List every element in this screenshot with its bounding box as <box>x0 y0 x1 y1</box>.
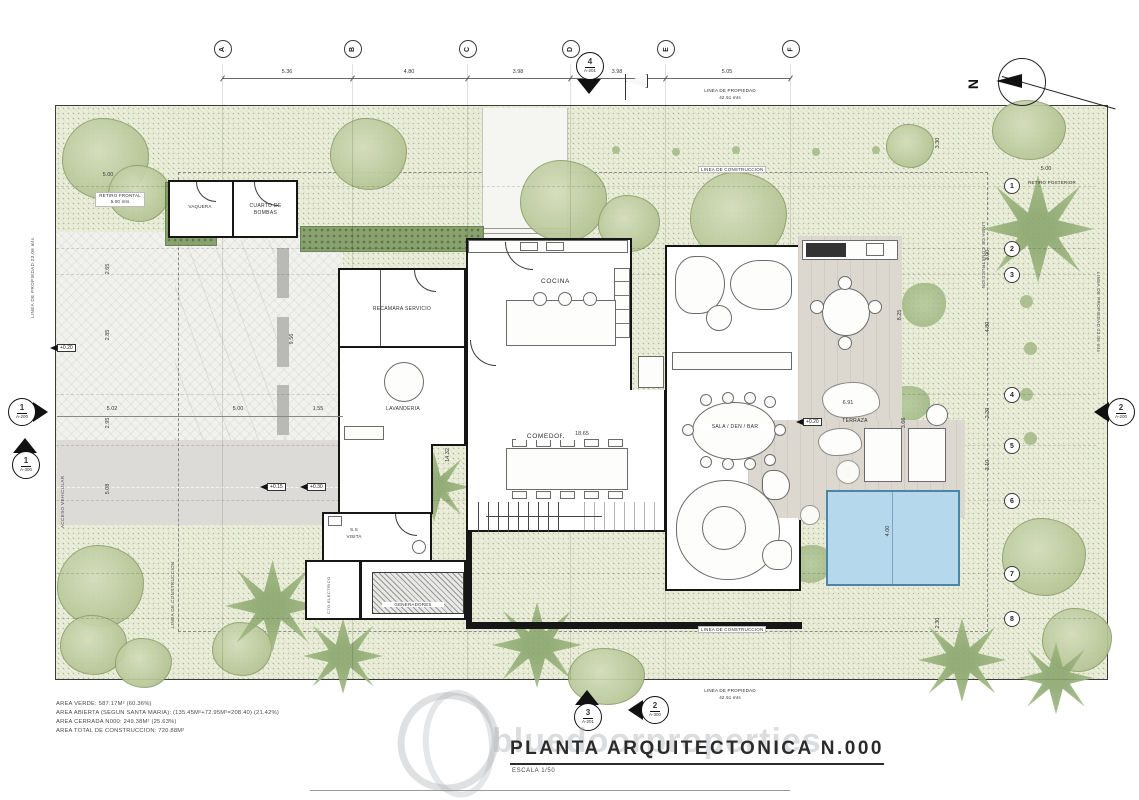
shrub-dot <box>732 146 740 154</box>
shrub-dot <box>812 148 820 156</box>
side-table <box>926 404 948 426</box>
grid-label: 8 <box>1010 616 1014 623</box>
drawing-scale: ESCALA 1/50 <box>512 768 555 774</box>
dim-mid-3: 1.55 <box>300 406 336 412</box>
label-recamara-servicio: RECAMARA SERVICIO <box>352 306 452 312</box>
dim-rchain-3: 2.20 <box>985 401 991 425</box>
elevation-value: +0.30 <box>307 483 326 491</box>
dim-lounger: 3.66 <box>901 411 907 435</box>
elevator-shaft <box>638 356 664 388</box>
chair <box>682 424 694 436</box>
dim-rock: 6.91 <box>830 400 866 406</box>
chair <box>536 491 551 499</box>
grid-label: F <box>788 47 795 51</box>
elevation-value: +0.20 <box>57 344 76 352</box>
kitchen-cooktop <box>546 242 564 251</box>
label-ss: S.S <box>342 527 366 532</box>
label-linea-construccion-left: LINEA DE CONSTRUCCION <box>170 548 175 628</box>
label-visita: VISITA <box>338 534 370 539</box>
text: LINEA DE PROPIEDAD <box>30 263 35 318</box>
shrub-dot <box>612 146 620 154</box>
elevation-tag: +0.20 <box>796 418 822 426</box>
chair <box>764 454 776 466</box>
ottoman <box>702 506 746 550</box>
drawing-title: PLANTA ARQUITECTONICA N.000 <box>510 738 884 765</box>
floor-plan-sheet: A B C D E F 5.36 4.80 3.98 3.98 5.05 1 2… <box>0 0 1139 800</box>
tree <box>1002 518 1086 596</box>
dim-retiro-frontal: 5.00 <box>88 172 128 178</box>
grid-bubble-F: F <box>782 40 800 58</box>
dim-right-top: 3.30 <box>935 131 941 155</box>
area-total: AREA TOTAL DE CONSTRUCCION: 720.88M² <box>56 727 396 736</box>
grid-label: A <box>220 46 227 51</box>
boulder <box>818 428 862 456</box>
armchair <box>762 540 792 570</box>
marker-number: 4 <box>585 58 595 68</box>
pool-centerline <box>892 492 893 584</box>
grid-label: 1 <box>1010 183 1014 190</box>
terraza-table <box>822 288 870 336</box>
text: 5.00 mts <box>111 199 130 204</box>
text: LINEA DE PROPIEDAD <box>704 688 756 693</box>
grid-bubble-A: A <box>214 40 232 58</box>
label-linea-construccion-bottom: LINEA DE CONSTRUCCION <box>698 626 766 633</box>
area-abierta: AREA ABIERTA (SEGUN SANTA MARIA): (135.4… <box>56 709 396 718</box>
grid-label: 2 <box>1010 246 1014 253</box>
stool <box>533 292 547 306</box>
arrow-icon <box>300 484 307 490</box>
label-linea-propiedad-right: LINEA DE PROPIEDAD 23.06 mts <box>1096 272 1101 362</box>
room-cto-electrico <box>305 560 361 620</box>
stair-run-dashed <box>584 502 658 532</box>
sofa <box>730 260 792 310</box>
dim-deck: 8.25 <box>897 301 903 329</box>
label-acceso-vehicular: ACCESO VEHICULAR <box>60 462 65 528</box>
marker-number: 1 <box>17 404 27 414</box>
label-linea-construccion-top: LINEA DE CONSTRUCCION <box>698 166 766 173</box>
label-linea-propiedad-left: LINEA DE PROPIEDAD 23.06 mts <box>30 238 35 318</box>
dim-left-3: 2.95 <box>105 411 111 435</box>
grid-bubble-1: 1 <box>1004 178 1020 194</box>
chair <box>838 336 852 350</box>
marker-bubble: 2A-300 <box>641 696 669 724</box>
dim-comedor: 18.65 <box>562 431 602 437</box>
marker-bubble: 4A-201 <box>576 52 604 80</box>
watermark-logo <box>387 681 508 800</box>
stepping-stone <box>800 505 820 525</box>
flag-pole <box>625 74 626 100</box>
label-linea-propiedad-top: LINEA DE PROPIEDAD 42.51 mts <box>690 88 770 102</box>
chair <box>744 458 756 470</box>
tree <box>212 622 272 676</box>
dim-top-cd: 3.98 <box>498 69 538 75</box>
dim-carport: 9.56 <box>289 327 295 351</box>
dim-top-ab: 5.36 <box>267 69 307 75</box>
chair <box>560 491 575 499</box>
label-sala: SALA / DEN / BAR <box>700 424 770 430</box>
grid-bubble-6: 6 <box>1004 493 1020 509</box>
text: LINEA DE PROPIEDAD <box>704 88 756 93</box>
tree <box>886 124 934 168</box>
tree <box>57 545 144 627</box>
elevation-value: +0.20 <box>803 418 822 426</box>
coffee-table <box>706 305 732 331</box>
tree <box>992 100 1066 160</box>
arrow-icon <box>796 419 803 425</box>
text: RETIRO FRONTAL <box>99 193 141 198</box>
dim-left-2: 2.85 <box>105 323 111 347</box>
elevation-value: +0.15 <box>267 483 286 491</box>
grid-label: D <box>568 46 575 51</box>
marker-bubble: 1A-300 <box>12 451 40 479</box>
label-retiro-posterior: RETIRO POSTERIOR <box>1022 180 1082 185</box>
toilet <box>412 540 426 554</box>
kitchen-cabinets <box>614 268 630 338</box>
chair <box>584 439 599 447</box>
shrub-dot <box>1024 432 1037 445</box>
chair <box>744 392 756 404</box>
chair <box>764 396 776 408</box>
marker-number: 2 <box>1116 404 1126 414</box>
sun-lounger <box>908 428 946 482</box>
armchair <box>762 470 790 500</box>
label-cocina: COCINA <box>528 278 583 285</box>
grid-bubble-4: 4 <box>1004 387 1020 403</box>
area-cerrada: AREA CERRADA N000: 249.38M² (25.63%) <box>56 718 396 727</box>
dim-rchain-2: 4.80 <box>985 315 991 339</box>
compass-arrow-icon <box>996 74 1022 88</box>
text: LINEA DE PROPIEDAD <box>1096 272 1101 327</box>
label-cto-electrico: CTO ELECTRICO <box>326 568 331 614</box>
sheet-border-line <box>310 790 790 791</box>
label-lavanderia: LAVANDERIA <box>368 406 438 412</box>
chair <box>774 424 786 436</box>
sink <box>328 516 342 526</box>
marker-bubble: 1A-200 <box>8 398 36 426</box>
grid-line-A <box>222 64 223 680</box>
flag-icon <box>626 74 648 88</box>
dim-mid-2: 5.00 <box>218 406 258 412</box>
grid-bubble-B: B <box>344 40 362 58</box>
marker-sheet: A-300 <box>649 712 661 718</box>
chair <box>700 456 712 468</box>
dim-retiro-posterior: 5.00 <box>1026 166 1066 172</box>
label-vaquera: VAQUERA <box>178 204 222 209</box>
kitchen-island <box>506 300 616 346</box>
generator-equipment <box>372 572 464 614</box>
grid-bubble-3: 3 <box>1004 267 1020 283</box>
arrow-icon <box>50 345 57 351</box>
shrub-dot <box>1020 295 1033 308</box>
grid-label: 7 <box>1010 571 1014 578</box>
chair <box>722 392 734 404</box>
chair <box>608 491 623 499</box>
grid-label: E <box>662 47 669 52</box>
text: 23.06 mts <box>1096 329 1101 352</box>
marker-number: 3 <box>583 709 593 719</box>
top-dimension-line <box>222 78 790 79</box>
grid-bubble-E: E <box>657 40 675 58</box>
chair <box>536 439 551 447</box>
tree <box>520 160 607 242</box>
shrub-dot <box>672 148 680 156</box>
shrub-dot <box>1024 342 1037 355</box>
bbq-grill <box>806 243 846 257</box>
chair <box>512 439 527 447</box>
dim-left-1: 2.65 <box>105 257 111 281</box>
tree <box>330 118 407 190</box>
hallway <box>338 444 433 514</box>
chair <box>608 439 623 447</box>
stair-run <box>478 502 564 532</box>
laundry-counter <box>344 426 384 440</box>
text: 23.06 mts <box>30 238 35 261</box>
grid-bubble-5: 5 <box>1004 438 1020 454</box>
area-summary: AREA VERDE: 587.17M² (60.36%) AREA ABIER… <box>56 700 396 736</box>
marker-number: 1 <box>21 457 31 467</box>
shrub-dot <box>872 146 880 154</box>
grid-label: 5 <box>1010 443 1014 450</box>
dim-rchain-4: 3.10 <box>985 453 991 477</box>
chair <box>560 439 575 447</box>
dim-top-bc: 4.80 <box>389 69 429 75</box>
stool <box>558 292 572 306</box>
elevation-tag: +0.20 <box>50 344 76 352</box>
grid-bubble-C: C <box>459 40 477 58</box>
area-verde: AREA VERDE: 587.17M² (60.36%) <box>56 700 396 709</box>
chair <box>838 276 852 290</box>
label-cuarto-bombas: CUARTO DE BOMBAS <box>238 203 293 217</box>
grid-label: 3 <box>1010 272 1014 279</box>
grid-bubble-7: 7 <box>1004 566 1020 582</box>
chair <box>512 491 527 499</box>
grid-label: C <box>465 46 472 51</box>
dim-rchain-1: 3.00 <box>985 243 991 267</box>
laundry-table <box>384 362 424 402</box>
elevation-tag: +0.15 <box>260 483 286 491</box>
stool <box>583 292 597 306</box>
marker-sheet: A-200 <box>16 414 28 420</box>
grid-bubble-D: D <box>562 40 580 58</box>
chair <box>868 300 882 314</box>
grid-label: 4 <box>1010 392 1014 399</box>
label-retiro-frontal: RETIRO FRONTAL 5.00 mts <box>95 192 145 207</box>
grid-label: B <box>350 46 357 51</box>
marker-sheet: A-201 <box>584 68 596 74</box>
marker-arrow-icon <box>577 79 601 94</box>
bbq-sink <box>866 243 884 256</box>
stair-arrow <box>486 516 602 517</box>
text: 42.51 mts <box>719 695 741 700</box>
sun-lounger <box>864 428 902 482</box>
chair <box>700 394 712 406</box>
dim-rchain-5: 2.30 <box>935 611 941 635</box>
elevation-tag: +0.30 <box>300 483 326 491</box>
sofa-bench <box>672 352 792 370</box>
pool <box>826 490 960 586</box>
marker-sheet: A-200 <box>1115 414 1127 420</box>
grid-bubble-8: 8 <box>1004 611 1020 627</box>
grid-label: 6 <box>1010 498 1014 505</box>
stepping-stone <box>836 460 860 484</box>
marker-number: 2 <box>650 702 660 712</box>
dim-left-4: 5.08 <box>105 477 111 501</box>
text: 42.51 mts <box>719 95 741 100</box>
north-label: N <box>965 79 981 89</box>
dim-top-ef: 5.05 <box>707 69 747 75</box>
arrow-icon <box>260 484 267 490</box>
mid-dimension-line <box>57 416 343 417</box>
west-courtyard-wall <box>466 532 472 629</box>
label-linea-propiedad-bottom: LINEA DE PROPIEDAD 42.51 mts <box>690 688 770 702</box>
tree <box>115 638 172 688</box>
sala-table <box>692 402 776 460</box>
chair <box>722 458 734 470</box>
grid-bubble-2: 2 <box>1004 241 1020 257</box>
label-generadores: GENERADORES <box>382 602 444 607</box>
dim-pool: 4.00 <box>885 517 891 545</box>
chair <box>584 491 599 499</box>
dim-mid-1: 5.02 <box>92 406 132 412</box>
marker-bubble: 2A-200 <box>1107 398 1135 426</box>
marker-sheet: A-300 <box>20 467 32 473</box>
dim-hall: 14.32 <box>445 441 451 469</box>
label-terraza: TERRAZA <box>832 418 878 424</box>
chair <box>810 300 824 314</box>
dining-table <box>506 448 628 490</box>
